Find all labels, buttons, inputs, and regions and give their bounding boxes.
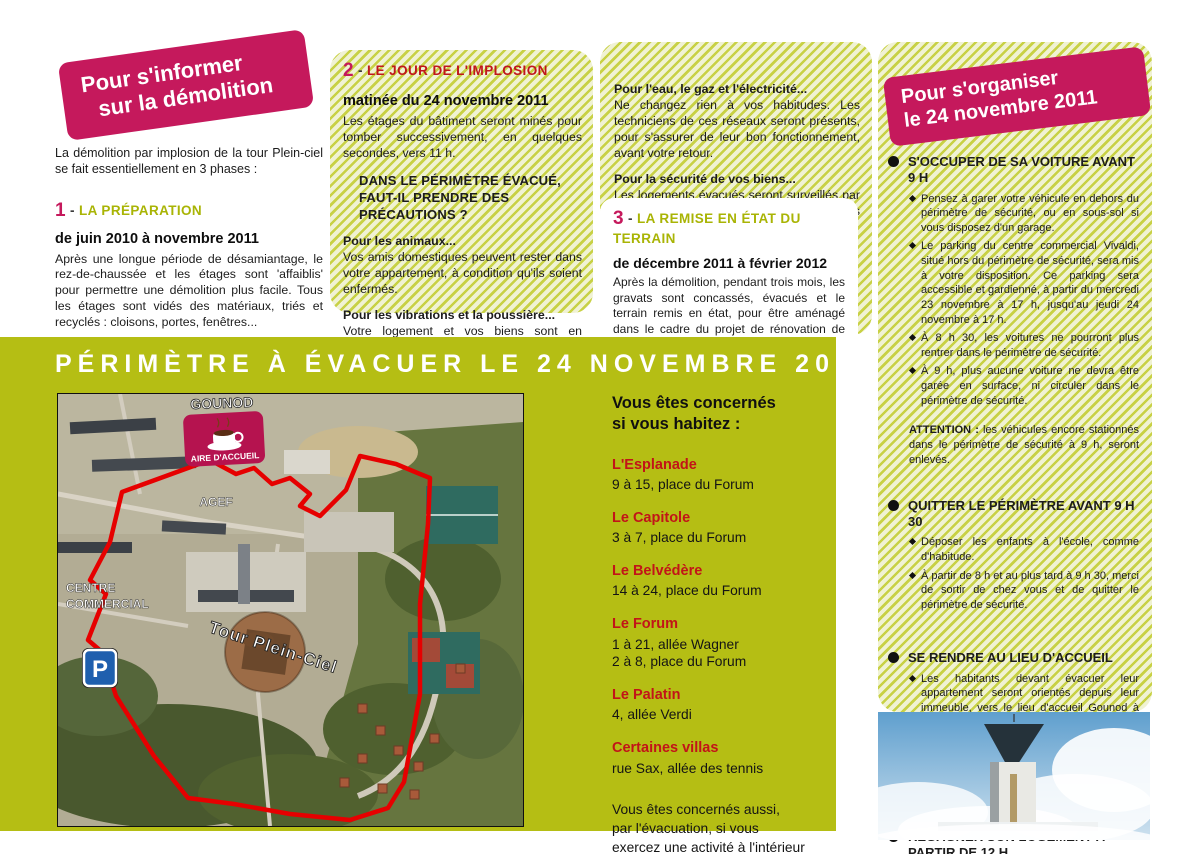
animals-title: Pour les animaux... <box>343 234 582 248</box>
section-voiture-items: Pensez à garer votre véhicule en dehors … <box>909 192 1139 409</box>
entry-detail: rue Sax, allée des tennis <box>612 760 812 778</box>
aerial-map: Tour Plein-Ciel AIRE D'ACCUEIL GOUNOD AG… <box>57 393 524 827</box>
phase2-number: 2 <box>343 60 354 81</box>
section-bullet-icon <box>888 156 899 167</box>
phase3-dash: - <box>628 211 633 226</box>
organiser-badge: Pour s'organiser le 24 novembre 2011 <box>883 46 1151 147</box>
parking-icon: P <box>83 649 118 688</box>
phase3-box: 3 - LA REMISE EN ÉTAT DU TERRAIN de déce… <box>600 198 858 335</box>
animals-body: Vos amis domestiques peuvent rester dans… <box>343 250 582 298</box>
phase1-title: LA PRÉPARATION <box>79 203 202 218</box>
entry-detail: 14 à 24, place du Forum <box>612 582 812 600</box>
entry-villas: Certaines villas rue Sax, allée des tenn… <box>612 739 812 777</box>
intro-text: La démolition par implosion de la tour P… <box>55 145 323 178</box>
aerial-map-graphic: Tour Plein-Ciel AIRE D'ACCUEIL GOUNOD AG… <box>58 394 523 826</box>
item-text: Pensez à garer votre véhicule en dehors … <box>921 193 1139 234</box>
diamond-bullet-icon <box>909 571 916 578</box>
entry-name: Le Palatin <box>612 686 812 704</box>
phase1-number: 1 <box>55 200 66 221</box>
diamond-bullet-icon <box>909 538 916 545</box>
map-label-centre-line1: CENTRE <box>66 581 115 595</box>
section-quitter-title: QUITTER LE PÉRIMÈTRE AVANT 9 H 30 <box>908 498 1139 531</box>
section-voiture-title: S'OCCUPER DE SA VOITURE AVANT 9 H <box>908 154 1139 187</box>
phase2-intro: Les étages du bâtiment seront minés pour… <box>343 114 582 162</box>
item-text: À partir de 8 h et au plus tard à 9 h 30… <box>921 570 1139 611</box>
phase1-body: Après une longue période de désamiantage… <box>55 252 323 332</box>
list-item: À 9 h, plus aucune voiture ne devra être… <box>909 364 1139 408</box>
brochure-page: Pour s'informer sur la démolition La dém… <box>0 0 1191 854</box>
section-quitter-heading: QUITTER LE PÉRIMÈTRE AVANT 9 H 30 <box>888 498 1139 531</box>
section-quitter-items: Déposer les enfants à l'école, comme d'h… <box>909 535 1139 612</box>
entry-name: Le Belvédère <box>612 562 812 580</box>
implosion-panel: 2 - LE JOUR DE L'IMPLOSION matinée du 24… <box>330 50 593 313</box>
tower-photo-graphic <box>878 712 1150 840</box>
attention-label: ATTENTION : <box>909 424 979 436</box>
diamond-bullet-icon <box>909 675 916 682</box>
section-bullet-icon <box>888 500 899 511</box>
diamond-bullet-icon <box>909 194 916 201</box>
map-label-gounod: GOUNOD <box>190 394 254 412</box>
phase2-heading: 2 - LE JOUR DE L'IMPLOSION <box>343 60 582 82</box>
phase1-dash: - <box>70 203 75 218</box>
entry-capitole: Le Capitole 3 à 7, place du Forum <box>612 509 812 547</box>
map-label-centre-line2: COMMERCIAL <box>66 597 149 611</box>
phase1-column: La démolition par implosion de la tour P… <box>55 140 323 331</box>
section-bullet-icon <box>888 652 899 663</box>
list-item: À 8 h 30, les voitures ne pourront plus … <box>909 331 1139 360</box>
phase1-heading: 1 - LA PRÉPARATION <box>55 200 323 222</box>
services-panel: Pour l'eau, le gaz et l'électricité... N… <box>600 42 872 335</box>
entry-detail: 4, allée Verdi <box>612 706 812 724</box>
biens-title: Pour la sécurité de vos biens... <box>614 172 860 186</box>
phase3-date: de décembre 2011 à février 2012 <box>613 255 845 271</box>
section-quitter: QUITTER LE PÉRIMÈTRE AVANT 9 H 30 Dépose… <box>888 498 1139 613</box>
concernes-footer: Vous êtes concernés aussi, par l'évacuat… <box>612 801 812 854</box>
list-item: Le parking du centre commercial Vivaldi,… <box>909 239 1139 327</box>
perimetre-title: PÉRIMÈTRE À ÉVACUER LE 24 NOVEMBRE 2011 <box>55 350 873 379</box>
phase3-heading: 3 - LA REMISE EN ÉTAT DU TERRAIN <box>613 208 845 248</box>
section-accueil-title: SE RENDRE AU LIEU D'ACCUEIL <box>908 650 1113 666</box>
entry-palatin: Le Palatin 4, allée Verdi <box>612 686 812 724</box>
concernes-title: Vous êtes concernés si vous habitez : <box>612 393 812 434</box>
diamond-bullet-icon <box>909 334 916 341</box>
item-text: Le parking du centre commercial Vivaldi,… <box>921 240 1139 325</box>
entry-name: Le Capitole <box>612 509 812 527</box>
entry-detail: 3 à 7, place du Forum <box>612 529 812 547</box>
parking-letter: P <box>92 656 108 683</box>
entry-detail: 1 à 21, allée Wagner 2 à 8, place du For… <box>612 636 812 672</box>
section-accueil-heading: SE RENDRE AU LIEU D'ACCUEIL <box>888 650 1139 666</box>
entry-name: Certaines villas <box>612 739 812 757</box>
phase3-number: 3 <box>613 208 624 229</box>
entry-esplanade: L'Esplanade 9 à 15, place du Forum <box>612 456 812 494</box>
phase2-date: matinée du 24 novembre 2011 <box>343 93 582 109</box>
phase1-date: de juin 2010 à novembre 2011 <box>55 231 323 247</box>
item-text: Déposer les enfants à l'école, comme d'h… <box>921 536 1139 563</box>
entry-detail: 9 à 15, place du Forum <box>612 476 812 494</box>
list-item: Pensez à garer votre véhicule en dehors … <box>909 192 1139 236</box>
phase3-title: LA REMISE EN ÉTAT DU TERRAIN <box>613 211 801 246</box>
diamond-bullet-icon <box>909 242 916 249</box>
entry-name: L'Esplanade <box>612 456 812 474</box>
section-voiture: S'OCCUPER DE SA VOITURE AVANT 9 H Pensez… <box>888 154 1139 468</box>
perimetre-panel: PÉRIMÈTRE À ÉVACUER LE 24 NOVEMBRE 2011 <box>0 337 836 831</box>
informer-badge: Pour s'informer sur la démolition <box>58 29 314 141</box>
organiser-panel: Pour s'organiser le 24 novembre 2011 S'O… <box>878 42 1152 712</box>
diamond-bullet-icon <box>909 367 916 374</box>
section-voiture-heading: S'OCCUPER DE SA VOITURE AVANT 9 H <box>888 154 1139 187</box>
tower-photo <box>878 712 1150 840</box>
item-text: À 8 h 30, les voitures ne pourront plus … <box>921 332 1139 359</box>
phase2-dash: - <box>358 63 363 78</box>
item-text: À 9 h, plus aucune voiture ne devra être… <box>921 365 1139 406</box>
list-item: Déposer les enfants à l'école, comme d'h… <box>909 535 1139 564</box>
eau-title: Pour l'eau, le gaz et l'électricité... <box>614 82 860 96</box>
vibrations-title: Pour les vibrations et la poussière... <box>343 308 582 322</box>
entry-name: Le Forum <box>612 615 812 633</box>
map-label-agef: AGEF <box>199 495 232 509</box>
list-item: À partir de 8 h et au plus tard à 9 h 30… <box>909 569 1139 613</box>
precautions-question: DANS LE PÉRIMÈTRE ÉVACUÉ, FAUT-IL PRENDR… <box>359 173 582 224</box>
aire-accueil-badge: AIRE D'ACCUEIL <box>183 411 266 467</box>
phase2-title: LE JOUR DE L'IMPLOSION <box>367 63 548 78</box>
eau-body: Ne changez rien à vos habitudes. Les tec… <box>614 98 860 162</box>
entry-forum: Le Forum 1 à 21, allée Wagner 2 à 8, pla… <box>612 615 812 671</box>
concernes-column: Vous êtes concernés si vous habitez : L'… <box>612 393 812 854</box>
entry-belvedere: Le Belvédère 14 à 24, place du Forum <box>612 562 812 600</box>
attention-note: ATTENTION : les véhicules encore station… <box>909 423 1139 468</box>
